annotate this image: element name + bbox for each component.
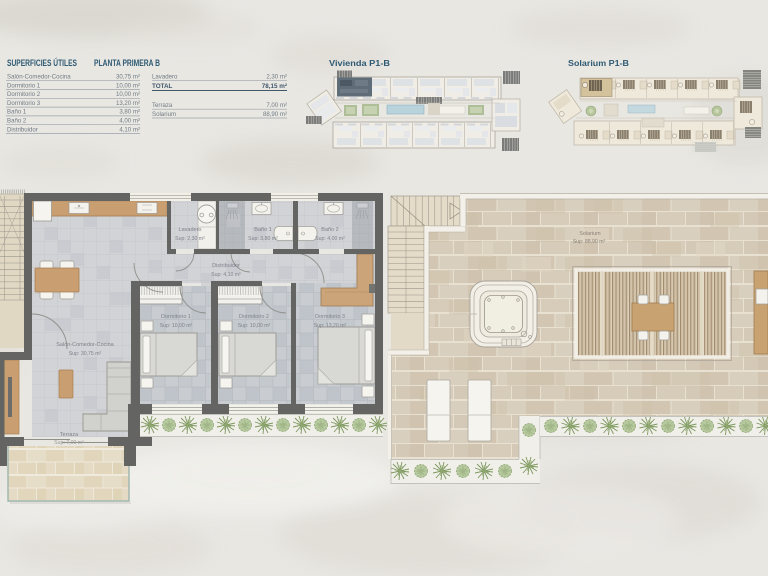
svg-text:Solarium P1-B: Solarium P1-B: [568, 58, 629, 68]
svg-text:Dormitorio 3: Dormitorio 3: [315, 314, 345, 320]
svg-text:Sup: 3,80 m²: Sup: 3,80 m²: [248, 236, 278, 242]
svg-text:Sup: 2,30 m²: Sup: 2,30 m²: [175, 236, 205, 242]
svg-text:Salón-Comedor-Cocina: Salón-Comedor-Cocina: [7, 74, 71, 81]
svg-text:4,00 m²: 4,00 m²: [119, 118, 140, 125]
svg-text:10,00 m²: 10,00 m²: [116, 82, 140, 89]
svg-text:4,10 m²: 4,10 m²: [119, 126, 140, 133]
svg-text:Lavadero: Lavadero: [179, 227, 202, 233]
svg-text:Dormitorio 2: Dormitorio 2: [239, 314, 269, 320]
svg-text:7,00 m²: 7,00 m²: [266, 102, 287, 109]
svg-text:Dormitorio 1: Dormitorio 1: [7, 82, 41, 89]
svg-text:Dormitorio 3: Dormitorio 3: [7, 100, 41, 107]
svg-text:TOTAL: TOTAL: [152, 83, 173, 90]
svg-text:PLANTA PRIMERA B: PLANTA PRIMERA B: [94, 58, 160, 68]
svg-text:SUPERFICIES ÚTILES: SUPERFICIES ÚTILES: [7, 57, 77, 68]
svg-text:Baño 2: Baño 2: [321, 227, 338, 233]
svg-text:Baño 1: Baño 1: [7, 109, 27, 116]
svg-text:Distribuidor: Distribuidor: [7, 126, 38, 133]
svg-text:Sup: 13,20 m²: Sup: 13,20 m²: [314, 323, 347, 329]
svg-text:88,90 m²: 88,90 m²: [263, 111, 287, 118]
svg-text:3,80 m²: 3,80 m²: [119, 109, 140, 116]
svg-text:Sup: 7,00 m²: Sup: 7,00 m²: [54, 440, 84, 446]
svg-text:2,30 m²: 2,30 m²: [266, 74, 287, 81]
svg-text:Terraza: Terraza: [60, 432, 79, 438]
svg-text:Sup: 88,90 m²: Sup: 88,90 m²: [573, 239, 606, 245]
svg-text:Sup: 10,00 m²: Sup: 10,00 m²: [238, 323, 271, 329]
svg-text:Terraza: Terraza: [152, 102, 173, 109]
svg-text:Dormitorio 2: Dormitorio 2: [7, 91, 41, 98]
svg-text:13,20 m²: 13,20 m²: [116, 100, 140, 107]
svg-text:Solarium: Solarium: [579, 231, 601, 237]
svg-text:10,00 m²: 10,00 m²: [116, 91, 140, 98]
svg-text:Dormitorio 1: Dormitorio 1: [161, 314, 191, 320]
svg-text:Sup: 4,00 m²: Sup: 4,00 m²: [315, 236, 345, 242]
svg-text:Sup: 30,75 m²: Sup: 30,75 m²: [69, 351, 102, 357]
svg-text:Baño 2: Baño 2: [7, 118, 27, 125]
svg-text:Salón-Comedor-Cocina: Salón-Comedor-Cocina: [56, 342, 114, 348]
svg-text:Lavadero: Lavadero: [152, 74, 178, 81]
svg-text:30,75 m²: 30,75 m²: [116, 74, 140, 81]
svg-text:78,15 m²: 78,15 m²: [262, 83, 287, 90]
svg-text:Baño 1: Baño 1: [254, 227, 271, 233]
svg-text:Sup: 4,10 m²: Sup: 4,10 m²: [211, 272, 241, 278]
svg-text:Sup: 10,00 m²: Sup: 10,00 m²: [160, 323, 193, 329]
svg-text:Vivienda P1-B: Vivienda P1-B: [329, 58, 390, 68]
svg-text:Distribuidor: Distribuidor: [212, 263, 240, 269]
svg-text:Solarium: Solarium: [152, 111, 176, 118]
